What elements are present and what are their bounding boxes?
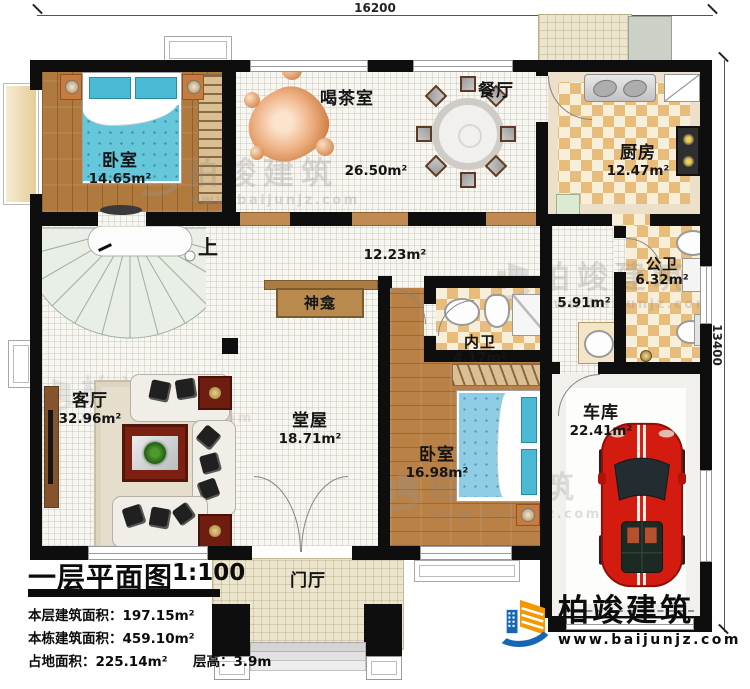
- wall: [536, 60, 548, 76]
- room-label-inner-bath: 内卫 4.17m²: [448, 334, 512, 367]
- kitchen-sink: [584, 74, 656, 102]
- back-porch-panel: [628, 16, 672, 64]
- nightstand: [516, 504, 540, 526]
- exterior-window-box: [414, 560, 520, 582]
- room-label-dining: 餐厅: [466, 82, 526, 102]
- wall: [540, 362, 560, 374]
- wall: [536, 122, 548, 226]
- title-underline: [28, 592, 220, 597]
- company-logo-icon: [500, 596, 550, 652]
- room-label-entry-hall: 门厅: [278, 572, 338, 592]
- bedroom2-wardrobe: [452, 364, 546, 386]
- total-area-value: 459.10m²: [123, 631, 195, 647]
- storey-height-value: 3.9m: [233, 654, 271, 670]
- stairs-up-label: 上: [194, 236, 222, 259]
- nightstand: [60, 74, 82, 100]
- wall: [424, 276, 552, 288]
- window: [700, 470, 712, 562]
- wall: [614, 272, 626, 362]
- doorway-threshold: [486, 212, 536, 226]
- area-label-hall: 12.23m²: [350, 248, 440, 264]
- window: [700, 266, 712, 324]
- right-dimension-line: [724, 60, 725, 632]
- wall: [30, 212, 98, 226]
- company-logo: 柏竣建筑 www.baijunjz.com: [500, 596, 741, 652]
- pillow: [135, 77, 177, 99]
- wall: [30, 194, 42, 554]
- sink-basin: [591, 78, 618, 100]
- lamp: [187, 80, 201, 94]
- room-label-living-room: 客厅 32.96m²: [52, 392, 128, 427]
- wall: [614, 226, 626, 238]
- porch-column: [364, 604, 402, 658]
- utility-sink: [584, 330, 614, 358]
- dining-chair: [416, 126, 432, 142]
- kitchen-passage: [612, 214, 650, 226]
- porch-column-base: [366, 656, 402, 680]
- pillow: [521, 397, 537, 443]
- room-label-bedroom2: 卧室 16.98m²: [400, 446, 474, 481]
- area-label-utility: 5.91m²: [552, 296, 616, 312]
- plant: [144, 442, 166, 464]
- dimension-tick: [707, 4, 718, 15]
- room-label-main-hall: 堂屋 18.71m²: [272, 412, 348, 447]
- rug-dot: [244, 92, 260, 108]
- window: [250, 60, 368, 72]
- lamp: [521, 508, 535, 522]
- rug-dot: [316, 138, 334, 156]
- storey-height-label: 层高：: [193, 654, 234, 670]
- wall: [598, 362, 712, 374]
- door-mat: [100, 205, 142, 215]
- wall: [650, 214, 712, 226]
- burner: [683, 134, 694, 145]
- floor-area-label: 本层建筑面积：: [28, 608, 123, 624]
- wall: [378, 288, 390, 558]
- floor-plan: 16200 13400 柏竣建筑www.baijunjz.com 柏竣建筑www…: [0, 0, 750, 689]
- pillow: [521, 449, 537, 495]
- wall: [540, 374, 552, 618]
- room-label-public-bath: 公卫 6.32m²: [630, 256, 694, 289]
- room-label-garage: 车库 22.41m²: [566, 404, 636, 439]
- bay-window: [4, 84, 38, 204]
- sports-car: [598, 420, 686, 590]
- room-label-bedroom1: 卧室 14.65m²: [80, 152, 160, 187]
- wall: [540, 226, 552, 362]
- toilet: [484, 294, 510, 328]
- land-area-value: 225.14m²: [96, 654, 168, 670]
- rug-dot: [250, 146, 264, 160]
- wall: [424, 288, 436, 304]
- sofa-cushion: [175, 378, 198, 401]
- window: [420, 546, 512, 560]
- floor-area-line: 本层建筑面积：197.15m²: [28, 604, 195, 624]
- floor-drain: [640, 350, 652, 362]
- floor-area-value: 197.15m²: [123, 608, 195, 624]
- column: [222, 338, 238, 354]
- side-table: [198, 376, 232, 410]
- back-porch: [538, 14, 632, 64]
- land-area-line: 占地面积：225.14m² 层高：3.9m: [28, 650, 271, 670]
- total-area-line: 本栋建筑面积：459.10m²: [28, 627, 195, 647]
- room-label-tea-room: 喝茶室: [302, 90, 392, 110]
- medallion: [209, 525, 221, 537]
- pillow: [89, 77, 131, 99]
- total-area-label: 本栋建筑面积：: [28, 631, 123, 647]
- land-area-label: 占地面积：: [28, 654, 96, 670]
- coffee-table: [122, 424, 188, 482]
- kitchen-corner-window: [664, 74, 700, 102]
- wall: [548, 214, 612, 226]
- sofa-cushion: [148, 506, 171, 529]
- room-label-kitchen: 厨房 12.47m²: [600, 144, 676, 179]
- stove: [676, 126, 700, 176]
- dining-chair: [500, 126, 516, 142]
- nightstand: [182, 74, 204, 100]
- sofa-cushion: [148, 379, 172, 403]
- area-label-tea-room: 26.50m²: [336, 164, 416, 180]
- plan-scale: 1:100: [172, 560, 245, 586]
- wall: [222, 60, 236, 226]
- lamp: [65, 80, 79, 94]
- plan-title: 一层平面图: [28, 556, 173, 596]
- dining-table-center: [458, 124, 482, 148]
- side-table: [198, 514, 232, 548]
- doorway-threshold: [240, 212, 290, 226]
- dimension-tick: [32, 4, 43, 15]
- wall: [30, 60, 42, 90]
- company-name: 柏竣建筑: [558, 596, 741, 627]
- wall: [378, 276, 392, 288]
- medallion: [209, 387, 221, 399]
- utility-sink-cabinet: [578, 322, 618, 364]
- company-website: www.baijunjz.com: [558, 632, 741, 648]
- bed-sheet-fold: [497, 393, 522, 497]
- wall: [30, 60, 712, 72]
- burner: [683, 156, 694, 167]
- dining-chair: [460, 172, 476, 188]
- sink-basin: [621, 78, 648, 100]
- doorway-threshold: [352, 212, 408, 226]
- window: [413, 60, 513, 72]
- top-dimension-label: 16200: [340, 1, 410, 15]
- room-label-shrine: 神龛: [276, 295, 364, 312]
